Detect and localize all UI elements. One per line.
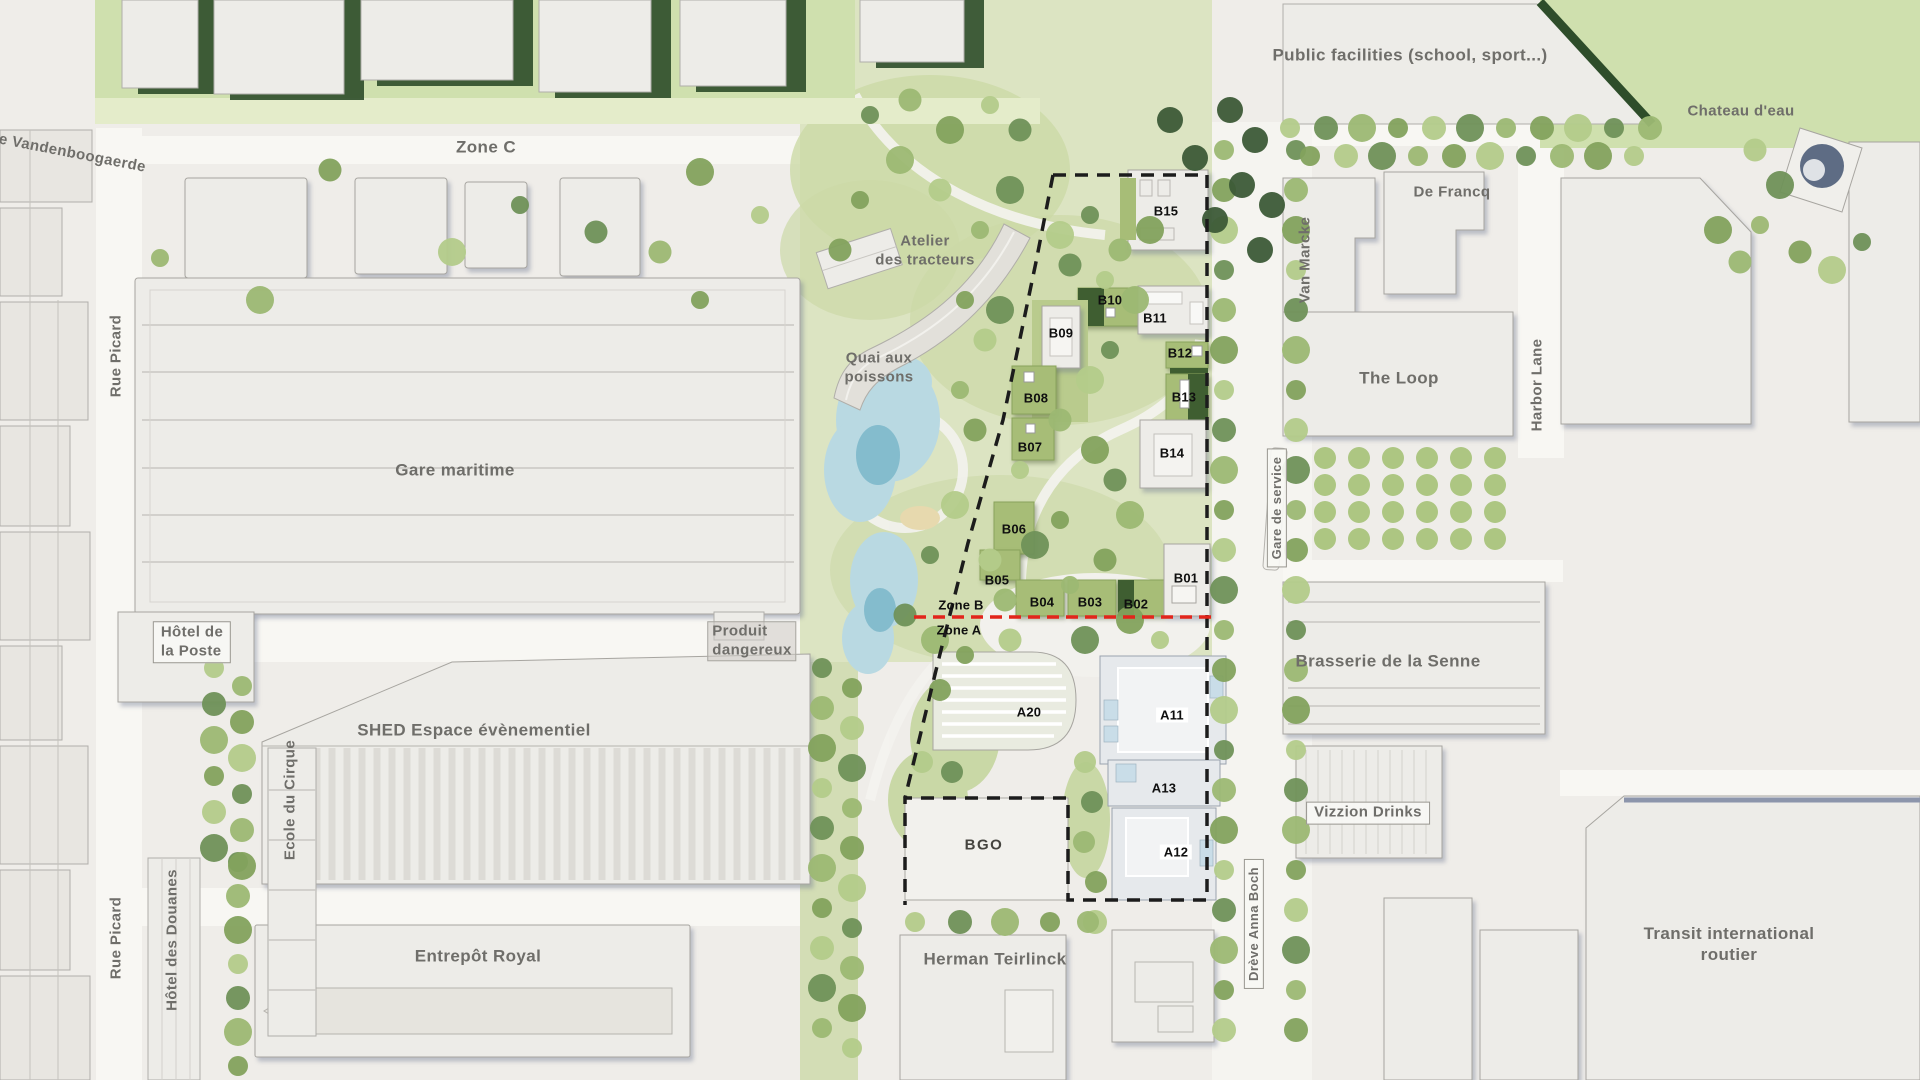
produit-dangereux-building <box>714 612 764 640</box>
gare-maritime-building <box>135 278 800 614</box>
south-east-building-1 <box>1384 898 1472 1080</box>
the-loop-building <box>1283 312 1513 436</box>
zone-c-north-band <box>95 0 1040 124</box>
transit-building <box>1586 796 1920 1080</box>
vizzion-drinks-building <box>1296 746 1442 858</box>
north-east-building <box>1561 178 1751 424</box>
map-canvas <box>0 0 1920 1080</box>
masterplan-map: Rue Vandenboogaerde Zone C Rue Picard Ru… <box>0 0 1920 1080</box>
a13-building <box>1108 760 1220 806</box>
hotel-des-douanes-building <box>148 858 200 1080</box>
entrepot-royal-building <box>255 925 690 1057</box>
b04-building <box>1016 580 1064 616</box>
brasserie-building <box>1283 582 1545 734</box>
north-blocks <box>185 178 640 278</box>
east-edge-building <box>1849 142 1920 422</box>
south-east-building-2 <box>1480 930 1578 1080</box>
ecole-du-cirque-building <box>268 748 316 1036</box>
a20-building <box>933 652 1076 750</box>
b01-building <box>1164 544 1210 616</box>
a12-building <box>1112 808 1216 900</box>
bgo-building <box>905 798 1068 900</box>
